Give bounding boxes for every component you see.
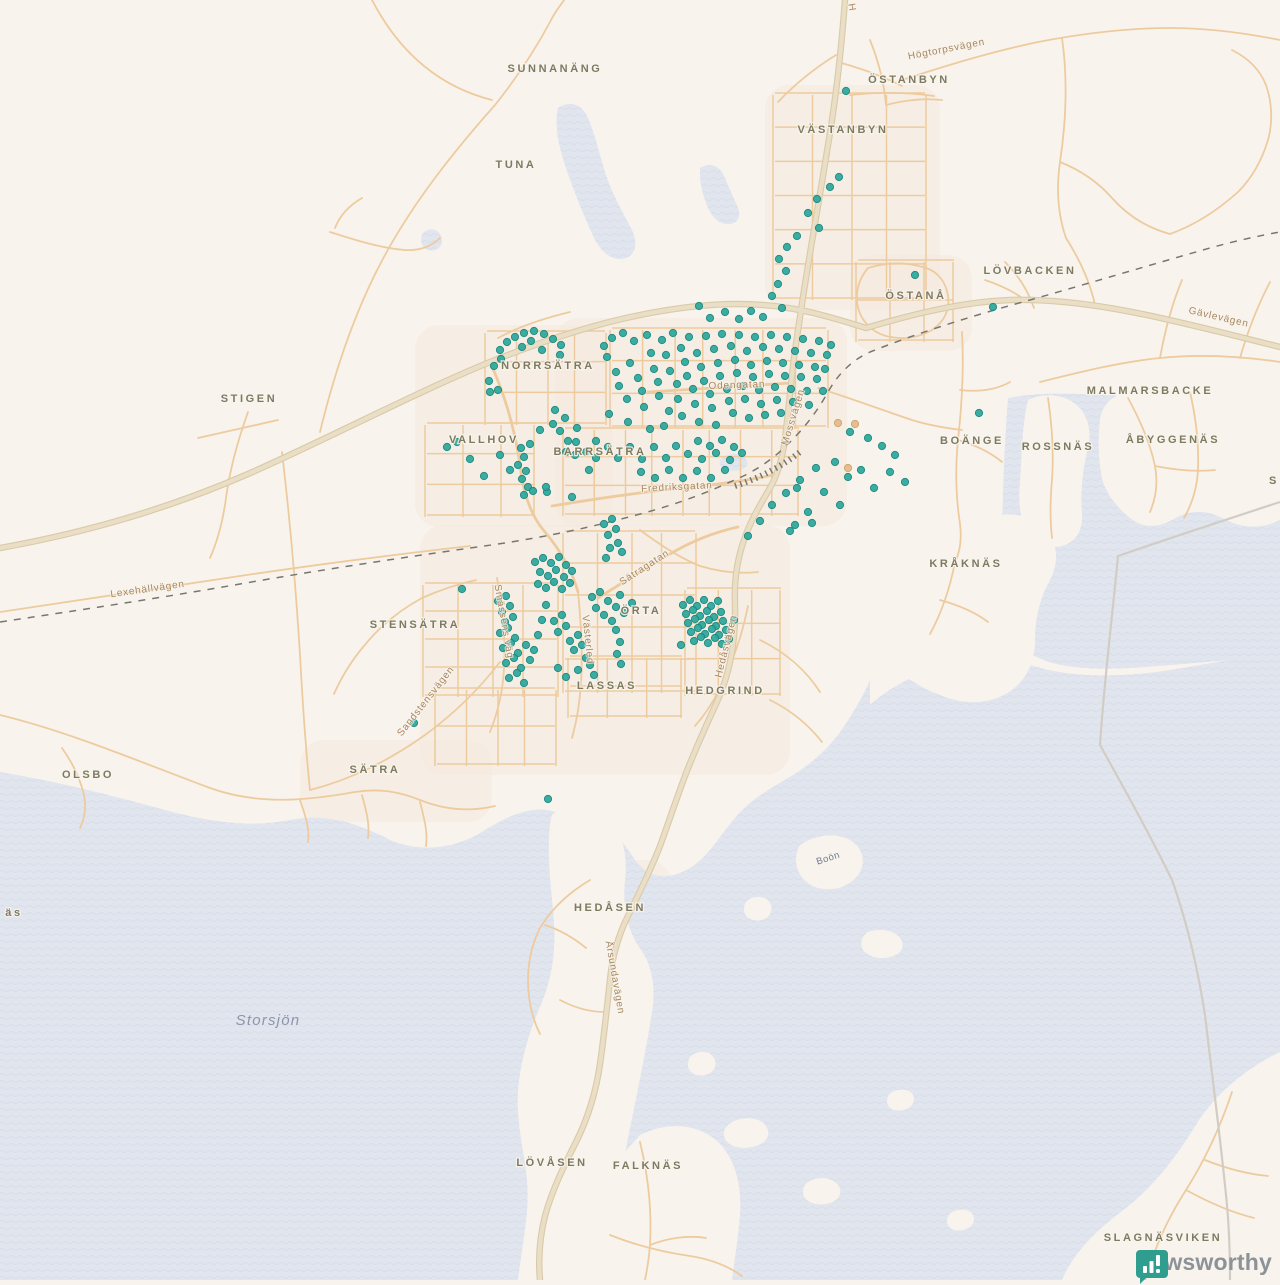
map-dot — [480, 472, 487, 479]
map-dot — [846, 428, 853, 435]
map-dot — [706, 314, 713, 321]
map-dot — [698, 455, 705, 462]
map-dot — [757, 400, 764, 407]
map-dot — [708, 404, 715, 411]
map-dot — [662, 351, 669, 358]
map-dot — [730, 443, 737, 450]
map-dot — [655, 392, 662, 399]
map-dot — [835, 173, 842, 180]
map-dot — [857, 466, 864, 473]
map-dot — [547, 559, 554, 566]
map-dot — [689, 606, 696, 613]
map-dot — [820, 488, 827, 495]
map-dot — [612, 626, 619, 633]
minor-road — [372, 0, 492, 100]
map-dot — [634, 374, 641, 381]
label-place: STIGEN — [221, 393, 278, 405]
label-place: FALKNÄS — [613, 1159, 683, 1172]
map-dot — [727, 342, 734, 349]
map-dot — [718, 330, 725, 337]
map-dot — [708, 625, 715, 632]
minor-road — [282, 452, 310, 790]
newsworthy-logo[interactable]: Newsworthy — [1135, 1249, 1272, 1276]
map-dot — [679, 601, 686, 608]
map-dot — [704, 639, 711, 646]
map-dot — [797, 373, 804, 380]
land-patch — [803, 1178, 840, 1204]
map-dot — [612, 525, 619, 532]
label-place: äs — [5, 907, 22, 919]
map-dot — [592, 437, 599, 444]
map-dot — [691, 400, 698, 407]
map-dot — [705, 616, 712, 623]
label-road: Odengatan — [708, 379, 765, 392]
map-dot — [743, 347, 750, 354]
map-dot — [568, 567, 575, 574]
map-dot — [683, 372, 690, 379]
map-dot — [592, 604, 599, 611]
map-dot — [666, 367, 673, 374]
map-dot — [534, 580, 541, 587]
minor-road — [902, 28, 1280, 80]
map-dot — [650, 443, 657, 450]
label-place: S — [1269, 475, 1279, 487]
map-dot — [700, 377, 707, 384]
minor-road — [1040, 356, 1280, 382]
map-dot — [747, 307, 754, 314]
map-dot — [522, 641, 529, 648]
map-dot — [782, 267, 789, 274]
map-dot — [600, 520, 607, 527]
map-dot — [643, 331, 650, 338]
map-dot — [744, 532, 751, 539]
map-dot — [585, 466, 592, 473]
map-dot — [702, 332, 709, 339]
map-dot — [717, 608, 724, 615]
map-dot — [619, 329, 626, 336]
map-dot — [793, 232, 800, 239]
map-dot — [616, 591, 623, 598]
map-dot — [791, 347, 798, 354]
map-dot — [650, 365, 657, 372]
map-dot — [677, 641, 684, 648]
map-dot — [787, 385, 794, 392]
map-dot — [774, 280, 781, 287]
map-dot — [520, 329, 527, 336]
map-dot — [694, 624, 701, 631]
map-dot — [726, 456, 733, 463]
map-dot — [679, 474, 686, 481]
map-dot — [623, 395, 630, 402]
map-dot — [759, 313, 766, 320]
label-place: NORRSÄTRA — [501, 359, 595, 372]
map-dot — [486, 388, 493, 395]
label-place: LASSAS — [577, 680, 637, 692]
map-dot — [549, 335, 556, 342]
map-dot — [538, 616, 545, 623]
land-patch — [688, 1052, 716, 1076]
map-dot — [640, 403, 647, 410]
label-place: VÄSTANBYN — [797, 123, 888, 136]
map-dot — [831, 458, 838, 465]
map-dot — [686, 596, 693, 603]
map-dot — [684, 450, 691, 457]
map-dot — [693, 349, 700, 356]
map-dot — [771, 383, 778, 390]
label-place: BARRSÄTRA — [553, 445, 646, 458]
map-dot — [490, 362, 497, 369]
map-dot — [821, 365, 828, 372]
map-dot — [505, 674, 512, 681]
map-dot — [651, 474, 658, 481]
map-dot — [646, 425, 653, 432]
minor-road — [1170, 50, 1271, 234]
map-dot — [494, 386, 501, 393]
map-dot — [804, 209, 811, 216]
map-dot — [485, 377, 492, 384]
land-patch — [1099, 378, 1280, 527]
map-dot — [773, 396, 780, 403]
map-dot — [778, 304, 785, 311]
map-dot — [695, 302, 702, 309]
map-dot — [560, 573, 567, 580]
map-dot — [570, 646, 577, 653]
map-dot — [503, 338, 510, 345]
map-dot — [844, 473, 851, 480]
map-dot — [673, 380, 680, 387]
map-dot — [808, 519, 815, 526]
map-dot — [768, 292, 775, 299]
map-dot — [626, 359, 633, 366]
minor-road — [198, 420, 278, 438]
map-dot — [751, 333, 758, 340]
map-dot — [520, 679, 527, 686]
map-dot — [681, 358, 688, 365]
map-dot — [616, 638, 623, 645]
map-dot — [513, 669, 520, 676]
map-dot — [542, 601, 549, 608]
label-place: ÅBYGGENÄS — [1126, 433, 1220, 446]
map-dot — [458, 585, 465, 592]
map-dot — [796, 476, 803, 483]
map-dot — [781, 372, 788, 379]
label-place: ÖSTANÅ — [885, 289, 946, 302]
water-texture — [835, 652, 1280, 1280]
map-dot — [864, 434, 871, 441]
map-dot — [518, 343, 525, 350]
label-place: SUNNANÄNG — [508, 62, 603, 75]
map-dot — [719, 617, 726, 624]
map-dot — [805, 401, 812, 408]
map-dot — [590, 671, 597, 678]
map-dot — [514, 461, 521, 468]
label-place: MALMARSBACKE — [1087, 385, 1214, 397]
map-dot — [745, 414, 752, 421]
map-svg: SUNNANÄNGTUNAÖSTANBYNVÄSTANBYNLÖVBACKENÖ… — [0, 0, 1280, 1280]
map-dot — [562, 622, 569, 629]
map-dot — [777, 409, 784, 416]
minor-road — [0, 546, 470, 612]
map-dot — [768, 501, 775, 508]
map-dot — [496, 451, 503, 458]
map-dot — [779, 359, 786, 366]
map-dot — [647, 349, 654, 356]
map-dot — [731, 356, 738, 363]
map-dot — [630, 337, 637, 344]
map-dot — [566, 579, 573, 586]
label-place: OLSBO — [62, 769, 114, 781]
label-place: KRÅKNÄS — [929, 557, 1002, 570]
map-dot — [836, 501, 843, 508]
map-dot — [506, 466, 513, 473]
map-dot — [712, 449, 719, 456]
map-dot-tan — [851, 420, 858, 427]
map-dot — [600, 342, 607, 349]
map-dot — [693, 467, 700, 474]
map-dot — [665, 407, 672, 414]
label-place: SLAGNÄSVIKEN — [1104, 1231, 1223, 1244]
map-dot — [706, 442, 713, 449]
label-place: LÖVÅSEN — [516, 1156, 587, 1169]
label-place: ROSSNÄS — [1022, 440, 1095, 453]
map-dot — [542, 584, 549, 591]
map-dot — [791, 521, 798, 528]
map-dot — [502, 659, 509, 666]
map-dot — [761, 411, 768, 418]
map-dot — [574, 666, 581, 673]
map-dot — [542, 483, 549, 490]
map-dot — [529, 487, 536, 494]
map-dot — [756, 517, 763, 524]
map-dot — [662, 454, 669, 461]
map-dot — [878, 442, 885, 449]
map-dot — [536, 426, 543, 433]
map-dot — [554, 628, 561, 635]
map-dot — [638, 387, 645, 394]
map-dot — [556, 351, 563, 358]
map-dot — [549, 420, 556, 427]
map-dot — [710, 345, 717, 352]
minor-road — [334, 598, 422, 694]
map-dot — [637, 468, 644, 475]
map-dot — [511, 333, 518, 340]
map-dot — [682, 610, 689, 617]
map-dot — [786, 527, 793, 534]
map-dot — [520, 453, 527, 460]
label-place: BOÄNGE — [940, 434, 1004, 447]
map-dot — [615, 382, 622, 389]
map-dot — [557, 341, 564, 348]
map-dot — [562, 561, 569, 568]
map-dot — [759, 343, 766, 350]
map-dot — [612, 368, 619, 375]
map-dot — [544, 795, 551, 802]
label-road: Lexehällvägen — [110, 579, 186, 600]
map-dot — [613, 650, 620, 657]
map-dot — [669, 329, 676, 336]
label-place: HEDÅSEN — [574, 901, 646, 914]
map-dot — [763, 357, 770, 364]
map-dot — [538, 346, 545, 353]
map-dot — [870, 484, 877, 491]
map-dot — [687, 628, 694, 635]
map-dot — [697, 633, 704, 640]
map-dot — [716, 372, 723, 379]
map-dot — [793, 484, 800, 491]
map-dot — [721, 466, 728, 473]
minor-road — [335, 198, 362, 228]
map-dot — [689, 385, 696, 392]
map-dot — [605, 410, 612, 417]
map-dot — [558, 585, 565, 592]
label-road: H — [845, 3, 857, 13]
map-dot — [665, 466, 672, 473]
minor-road — [1060, 162, 1170, 234]
map-dot — [617, 660, 624, 667]
map-dot — [552, 566, 559, 573]
map-dot — [572, 438, 579, 445]
map-dot — [815, 224, 822, 231]
map-dot — [568, 493, 575, 500]
minor-road — [1205, 1160, 1268, 1176]
map-dot — [530, 646, 537, 653]
water-texture — [557, 104, 636, 259]
map-dot — [795, 361, 802, 368]
map-dot — [911, 271, 918, 278]
map-dot — [765, 370, 772, 377]
label-place: HEDGRIND — [685, 685, 764, 697]
map-canvas: SUNNANÄNGTUNAÖSTANBYNVÄSTANBYNLÖVBACKENÖ… — [0, 0, 1280, 1280]
map-dot — [738, 449, 745, 456]
map-dot — [614, 539, 621, 546]
map-dot — [775, 345, 782, 352]
map-dot — [672, 442, 679, 449]
map-dot — [747, 361, 754, 368]
map-dot — [554, 664, 561, 671]
minor-road — [960, 382, 1010, 391]
map-dot — [466, 455, 473, 462]
map-dot — [658, 336, 665, 343]
map-dot — [550, 578, 557, 585]
map-dot — [574, 631, 581, 638]
map-dot — [558, 611, 565, 618]
map-dot — [782, 489, 789, 496]
map-dot — [811, 363, 818, 370]
map-dot — [735, 331, 742, 338]
map-dot — [685, 333, 692, 340]
map-dot — [826, 183, 833, 190]
map-dot — [555, 553, 562, 560]
map-dot — [694, 437, 701, 444]
map-dot — [703, 607, 710, 614]
map-dot — [561, 414, 568, 421]
label-place: TUNA — [496, 159, 537, 171]
map-dot — [544, 572, 551, 579]
map-dot — [712, 421, 719, 428]
map-dot — [526, 656, 533, 663]
label-place: ÖRTA — [621, 604, 662, 617]
map-dot — [697, 363, 704, 370]
map-dot — [539, 554, 546, 561]
map-dot — [823, 351, 830, 358]
label-place: STENSÄTRA — [370, 618, 461, 631]
map-dot — [842, 87, 849, 94]
map-dot — [714, 359, 721, 366]
map-dot — [566, 637, 573, 644]
map-dot — [783, 243, 790, 250]
map-dot — [721, 308, 728, 315]
map-dot — [556, 427, 563, 434]
label-place: SÄTRA — [350, 763, 401, 776]
map-dot — [550, 617, 557, 624]
map-dot — [767, 331, 774, 338]
map-dot — [695, 418, 702, 425]
map-dot — [783, 333, 790, 340]
map-dot — [540, 330, 547, 337]
map-dot — [799, 335, 806, 342]
map-dot — [509, 613, 516, 620]
map-dot — [534, 631, 541, 638]
label-place: LÖVBACKEN — [983, 264, 1076, 277]
map-dot-tan — [834, 419, 841, 426]
map-dot — [536, 568, 543, 575]
map-dot — [531, 558, 538, 565]
map-dot — [775, 255, 782, 262]
map-dot — [654, 378, 661, 385]
map-dot — [733, 369, 740, 376]
map-dot — [813, 195, 820, 202]
map-dot — [520, 491, 527, 498]
map-dot — [530, 327, 537, 334]
map-dot — [573, 424, 580, 431]
map-dot — [684, 619, 691, 626]
map-dot — [807, 349, 814, 356]
map-dot — [813, 375, 820, 382]
map-dot — [608, 515, 615, 522]
map-dot — [711, 634, 718, 641]
map-dot — [700, 596, 707, 603]
map-dot — [596, 588, 603, 595]
map-dot — [725, 397, 732, 404]
map-dot — [562, 673, 569, 680]
map-dot — [690, 637, 697, 644]
water-texture — [700, 165, 739, 224]
map-dot — [522, 467, 529, 474]
map-dot — [551, 406, 558, 413]
minor-road — [1186, 1190, 1254, 1218]
map-dot — [618, 548, 625, 555]
map-dot — [612, 603, 619, 610]
map-dot — [608, 617, 615, 624]
map-dot — [718, 436, 725, 443]
map-dot — [975, 409, 982, 416]
map-dot — [602, 554, 609, 561]
map-dot-tan — [844, 464, 851, 471]
map-dot — [891, 451, 898, 458]
map-dot — [604, 597, 611, 604]
map-dot — [526, 440, 533, 447]
map-dot — [827, 341, 834, 348]
map-dot — [603, 353, 610, 360]
map-dot — [714, 597, 721, 604]
land-patch — [744, 897, 772, 921]
map-dot — [677, 344, 684, 351]
map-dot — [608, 334, 615, 341]
map-dot — [527, 337, 534, 344]
map-dot — [886, 468, 893, 475]
map-dot — [691, 615, 698, 622]
map-dot — [624, 418, 631, 425]
